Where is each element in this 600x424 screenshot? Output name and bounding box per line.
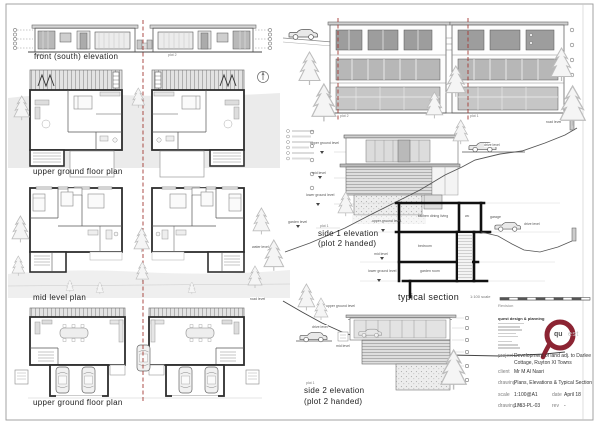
front-plot1-label: plot 1 <box>36 53 45 57</box>
section-room-wc: wc <box>465 214 469 218</box>
side2-level-mid: mid level <box>336 344 350 348</box>
side2-label-line1: side 2 elevation <box>304 386 364 395</box>
date-value: April 18 <box>564 392 581 398</box>
scale-label: scale <box>498 392 510 398</box>
lower-ground-floor-plan <box>15 308 262 398</box>
driveway-car-icon <box>137 345 150 371</box>
side1-plot-note: plot 1 <box>320 224 329 228</box>
section-car-icon <box>495 222 521 231</box>
section-room-mid: bedroom <box>418 244 432 248</box>
scale-bar <box>500 298 590 301</box>
front-elevation-label: front (south) elevation <box>34 52 118 61</box>
company-address-line <box>498 336 518 337</box>
upper-ground-floor-plan <box>8 70 280 177</box>
side2-plot-note: plot 1 <box>306 381 315 385</box>
callout-circles-right <box>255 28 272 49</box>
scale-value: 1:100@A1 <box>514 392 538 398</box>
side1-label-line1: side 1 elevation <box>318 229 378 238</box>
drawing-sheet: front (south) elevation plot 1 plot 2 up… <box>0 0 600 424</box>
side2-drive-level-tag: drive level <box>312 325 328 329</box>
company-address-line <box>498 323 524 324</box>
company-contact-line <box>498 344 518 345</box>
north-arrow-icon <box>258 72 269 83</box>
rear-plot1-label: plot 1 <box>470 114 479 118</box>
client-label: client <box>498 369 510 375</box>
side2-car-icon <box>300 332 327 341</box>
section-level-mid: mid level <box>374 252 388 256</box>
road-car-icon <box>289 30 318 40</box>
road-level-tag: road level <box>546 120 561 124</box>
project-value-2: Cottage, Ruyton XI Towns <box>514 360 572 366</box>
company-address-line <box>498 329 522 330</box>
company-address-line <box>498 333 516 334</box>
water-level-tag: water level <box>252 245 269 249</box>
side1-label-line2: (plot 2 handed) <box>318 239 376 248</box>
side2-level-upper-ground: upper ground level <box>326 305 352 309</box>
logo-text-est: est <box>568 331 579 338</box>
drive-level-tag: drive level <box>484 143 500 147</box>
company-logo <box>543 322 573 357</box>
project-label: project <box>498 353 513 359</box>
front-plot2-label: plot 2 <box>168 53 177 57</box>
upper-ground-plan-label: upper ground floor plan <box>33 167 123 176</box>
road-level-tag-2: road level <box>250 297 265 301</box>
client-value: Mr M Al Nasri <box>514 369 544 375</box>
company-address-line <box>498 326 520 327</box>
typical-section-label: typical section <box>398 292 459 302</box>
scale-bar-label: 1:100 scale <box>470 294 490 299</box>
section-room-lower: garden room <box>420 269 440 273</box>
callout-circles-rear <box>570 28 574 92</box>
project-value-1: Development of land adj. to Darlee <box>514 353 591 359</box>
level-tag-mid: mid level <box>312 171 326 175</box>
rev-value: - <box>564 403 566 409</box>
level-tag-garden: garden level <box>288 220 307 224</box>
drawingno-value: 1763-PL-03 <box>514 403 540 409</box>
company-contact-line <box>498 347 520 348</box>
level-tag-lower-ground: lower ground level <box>306 194 332 198</box>
section-drive-level-tag: drive level <box>524 222 540 226</box>
mid-level-plan-label: mid level plan <box>33 293 86 302</box>
drawing-label: drawing <box>498 380 516 386</box>
sheet-linework <box>0 0 600 424</box>
company-contact-line <box>498 341 512 342</box>
lower-ground-plan-label: upper ground floor plan <box>33 398 123 407</box>
mid-level-plan <box>8 187 290 298</box>
front-south-elevation <box>13 25 271 52</box>
drawing-value: Plans, Elevations & Typical Section <box>514 380 592 386</box>
section-level-upper-ground: upper ground level <box>372 220 396 224</box>
company-name: quest design & planning <box>498 316 544 321</box>
rev-label: rev <box>552 403 559 409</box>
callout-circles-left <box>13 28 33 49</box>
callout-circles-side1 <box>310 130 314 190</box>
revision-label: Revision <box>498 303 513 308</box>
callout-circles-side2 <box>465 316 468 381</box>
section-level-lower-ground: lower ground level <box>368 270 392 274</box>
level-tag-upper-ground: upper ground level <box>310 142 336 146</box>
section-room-upper: kitchen dining living <box>410 214 456 218</box>
date-label: date <box>552 392 562 398</box>
section-room-garage: garage <box>490 215 501 219</box>
side2-label-line2: (plot 2 handed) <box>304 397 362 406</box>
rear-plot2-label: plot 2 <box>340 114 349 118</box>
logo-text-qu: qu <box>554 331 563 338</box>
